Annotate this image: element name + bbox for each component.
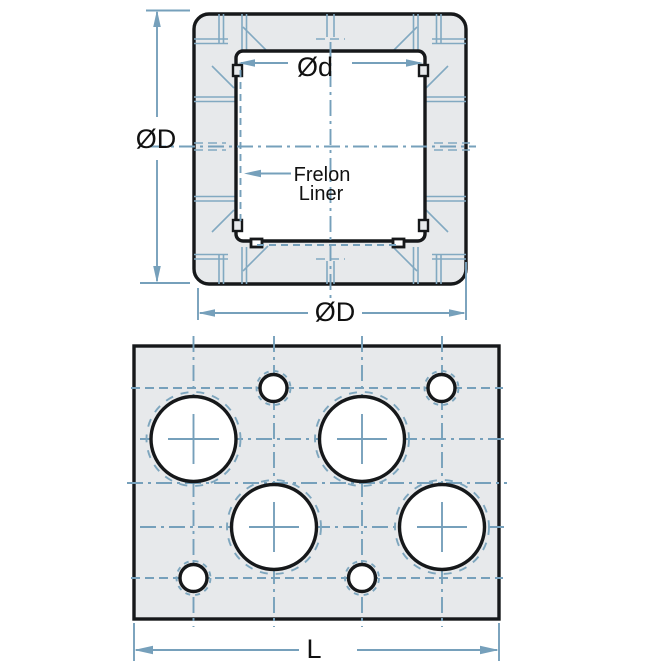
technical-drawing: ØD Ød ØD Frelon Liner: [0, 0, 670, 670]
label-outer-diameter-bottom: ØD: [315, 297, 356, 327]
dimension-length: L: [134, 623, 499, 664]
label-liner-line2: Liner: [299, 183, 344, 205]
label-length: L: [306, 634, 321, 664]
small-hole: [349, 565, 376, 592]
cross-section-view: ØD Ød ØD Frelon Liner: [136, 10, 476, 327]
small-hole: [260, 375, 287, 402]
front-view: L: [127, 336, 507, 664]
label-bore-diameter: Ød: [297, 52, 333, 82]
drawing-canvas: ØD Ød ØD Frelon Liner: [0, 0, 670, 670]
small-hole: [428, 375, 455, 402]
small-hole: [180, 565, 207, 592]
label-outer-diameter-left: ØD: [136, 124, 177, 154]
